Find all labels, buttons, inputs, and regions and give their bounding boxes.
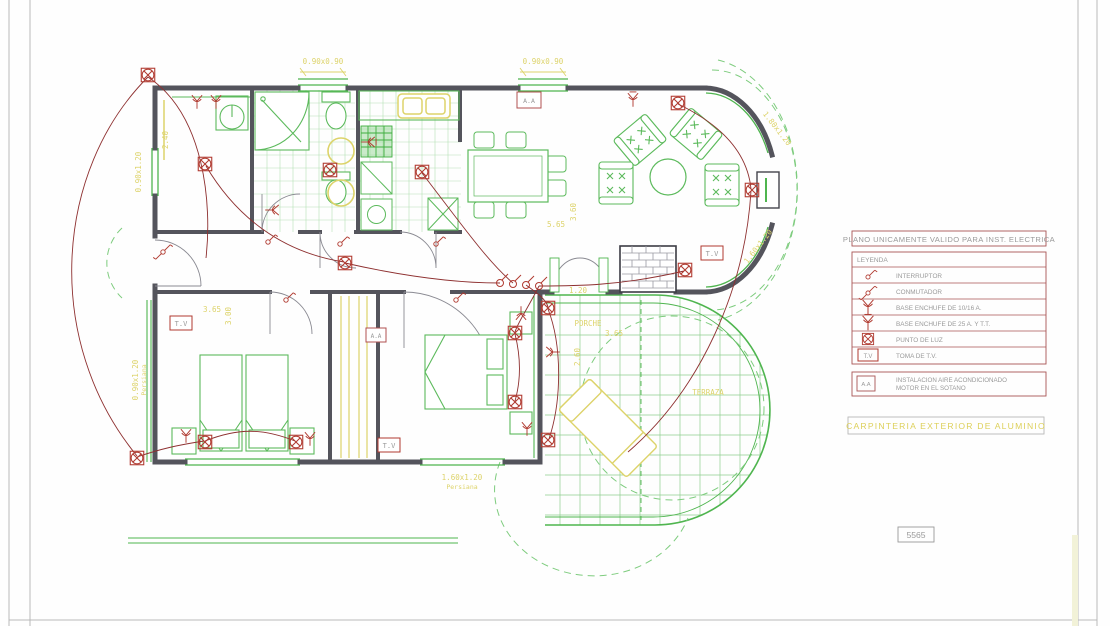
washer bbox=[361, 199, 392, 230]
legend-aa-block: A.A INSTALACION AIRE ACONDICIONADO MOTOR… bbox=[852, 372, 1046, 396]
drawing-sheet: T.V T.V T.V A.A A.A 0.90x0.90 0.90x0.90 … bbox=[0, 0, 1110, 626]
wardrobe bbox=[341, 296, 367, 458]
aa-symbol-text: A.A bbox=[861, 382, 870, 388]
dim-365-bedroom: 3.65 bbox=[203, 305, 221, 314]
dim-240: 2.40 bbox=[161, 130, 170, 149]
legend-row-punto-luz: PUNTO DE LUZ bbox=[862, 333, 942, 344]
legend-label: CONMUTADOR bbox=[896, 289, 942, 296]
room-label-terraza: TERRAZA bbox=[692, 388, 724, 397]
sun-lounger bbox=[559, 379, 658, 478]
legend-label: INTERRUPTOR bbox=[896, 273, 942, 280]
shower bbox=[255, 92, 309, 150]
carpinteria-text: CARPINTERIA EXTERIOR DE ALUMINIO bbox=[846, 421, 1046, 431]
dining-set bbox=[468, 132, 566, 218]
dim-window-bottom: 1.60x1.20 bbox=[442, 473, 483, 482]
legend-label: PUNTO DE LUZ bbox=[896, 337, 943, 344]
entry-room-fixture bbox=[172, 96, 250, 130]
tv-outlet-box-2: T.V bbox=[378, 438, 400, 452]
legend-row-enchufe-10: BASE ENCHUFE DE 10/16 A. bbox=[863, 300, 982, 314]
aa-box-label: A.A bbox=[371, 333, 382, 340]
dim-300: 3.00 bbox=[224, 306, 233, 325]
aa-label-line1: INSTALACION AIRE ACONDICIONADO bbox=[896, 377, 1007, 384]
conmutador-symbol bbox=[859, 286, 877, 300]
fireplace bbox=[620, 246, 676, 292]
floor-plan-svg: T.V T.V T.V A.A A.A 0.90x0.90 0.90x0.90 … bbox=[0, 0, 1110, 626]
dim-260: 2.60 bbox=[573, 347, 582, 366]
exterior-green-edges bbox=[128, 296, 538, 543]
dim-bottom-persiana: Persiana bbox=[446, 483, 477, 491]
dim-565: 5.65 bbox=[547, 220, 565, 229]
dim-left-persiana: Persiana bbox=[140, 364, 148, 395]
aa-box-label: A.A bbox=[523, 97, 535, 105]
coffee-table bbox=[650, 159, 686, 195]
dining-table bbox=[468, 150, 548, 202]
legend-label: BASE ENCHUFE DE 10/16 A. bbox=[896, 305, 982, 312]
legend-row-toma-tv: T.V TOMA DE T.V. bbox=[858, 349, 937, 361]
enchufe-25-tt-symbol bbox=[863, 314, 874, 330]
dim-tick-marks bbox=[300, 68, 566, 76]
legend-label: TOMA DE T.V. bbox=[896, 353, 937, 360]
legend-label: BASE ENCHUFE DE 25 A. Y T.T. bbox=[896, 321, 990, 328]
sheet-number: 5565 bbox=[906, 530, 925, 540]
legend-row-interruptor: INTERRUPTOR bbox=[866, 270, 943, 280]
legend-row-enchufe-25: BASE ENCHUFE DE 25 A. Y T.T. bbox=[863, 314, 991, 330]
toma-tv-symbol-text: T.V bbox=[864, 354, 873, 360]
frame-fold-strip bbox=[1072, 535, 1078, 626]
interruptor-symbol bbox=[866, 270, 877, 279]
aa-label-line2: MOTOR EN EL SOTANO bbox=[896, 385, 966, 392]
legend-panel: PLANO UNICAMENTE VALIDO PARA INST. ELECT… bbox=[843, 231, 1056, 542]
tv-outlet-label: T.V bbox=[383, 442, 396, 450]
tv-outlet-label: T.V bbox=[175, 320, 188, 328]
dim-window-top-2: 0.90x0.90 bbox=[523, 57, 564, 66]
hall-junction-points bbox=[497, 274, 548, 290]
kitchen-cabinet bbox=[361, 162, 392, 194]
dim-360: 3.60 bbox=[569, 202, 578, 221]
aa-box-2: A.A bbox=[366, 328, 386, 342]
dim-window-top-1: 0.90x0.90 bbox=[303, 57, 344, 66]
enchufe-10-16-symbol bbox=[863, 300, 874, 314]
dim-365-porch: 3.65 bbox=[605, 329, 623, 338]
legend-row-conmutador: CONMUTADOR bbox=[859, 286, 943, 300]
title-box: PLANO UNICAMENTE VALIDO PARA INST. ELECT… bbox=[843, 231, 1056, 246]
room-label-porche: PORCHE bbox=[574, 319, 602, 328]
plan-title: PLANO UNICAMENTE VALIDO PARA INST. ELECT… bbox=[843, 235, 1056, 244]
punto-de-luz-symbol bbox=[862, 333, 873, 344]
dim-120: 1.20 bbox=[569, 286, 588, 295]
tv-outlet-box-1: T.V bbox=[170, 316, 192, 330]
carpinteria-note: CARPINTERIA EXTERIOR DE ALUMINIO bbox=[846, 417, 1046, 434]
dim-window-left-lower: 0.90x1.20 bbox=[131, 359, 140, 400]
sheet-number-box: 5565 bbox=[898, 527, 934, 542]
tv-outlet-box-3: T.V bbox=[701, 246, 723, 260]
legend-header: LEYENDA bbox=[857, 257, 888, 264]
dim-window-left-upper: 0.90x1.20 bbox=[134, 151, 143, 192]
bay-door-box bbox=[757, 172, 779, 208]
aa-box-1: A.A bbox=[517, 92, 541, 108]
living-set bbox=[599, 107, 739, 206]
tv-outlet-label: T.V bbox=[706, 250, 719, 258]
toilet bbox=[322, 92, 350, 129]
kitchen-sink bbox=[398, 94, 450, 118]
